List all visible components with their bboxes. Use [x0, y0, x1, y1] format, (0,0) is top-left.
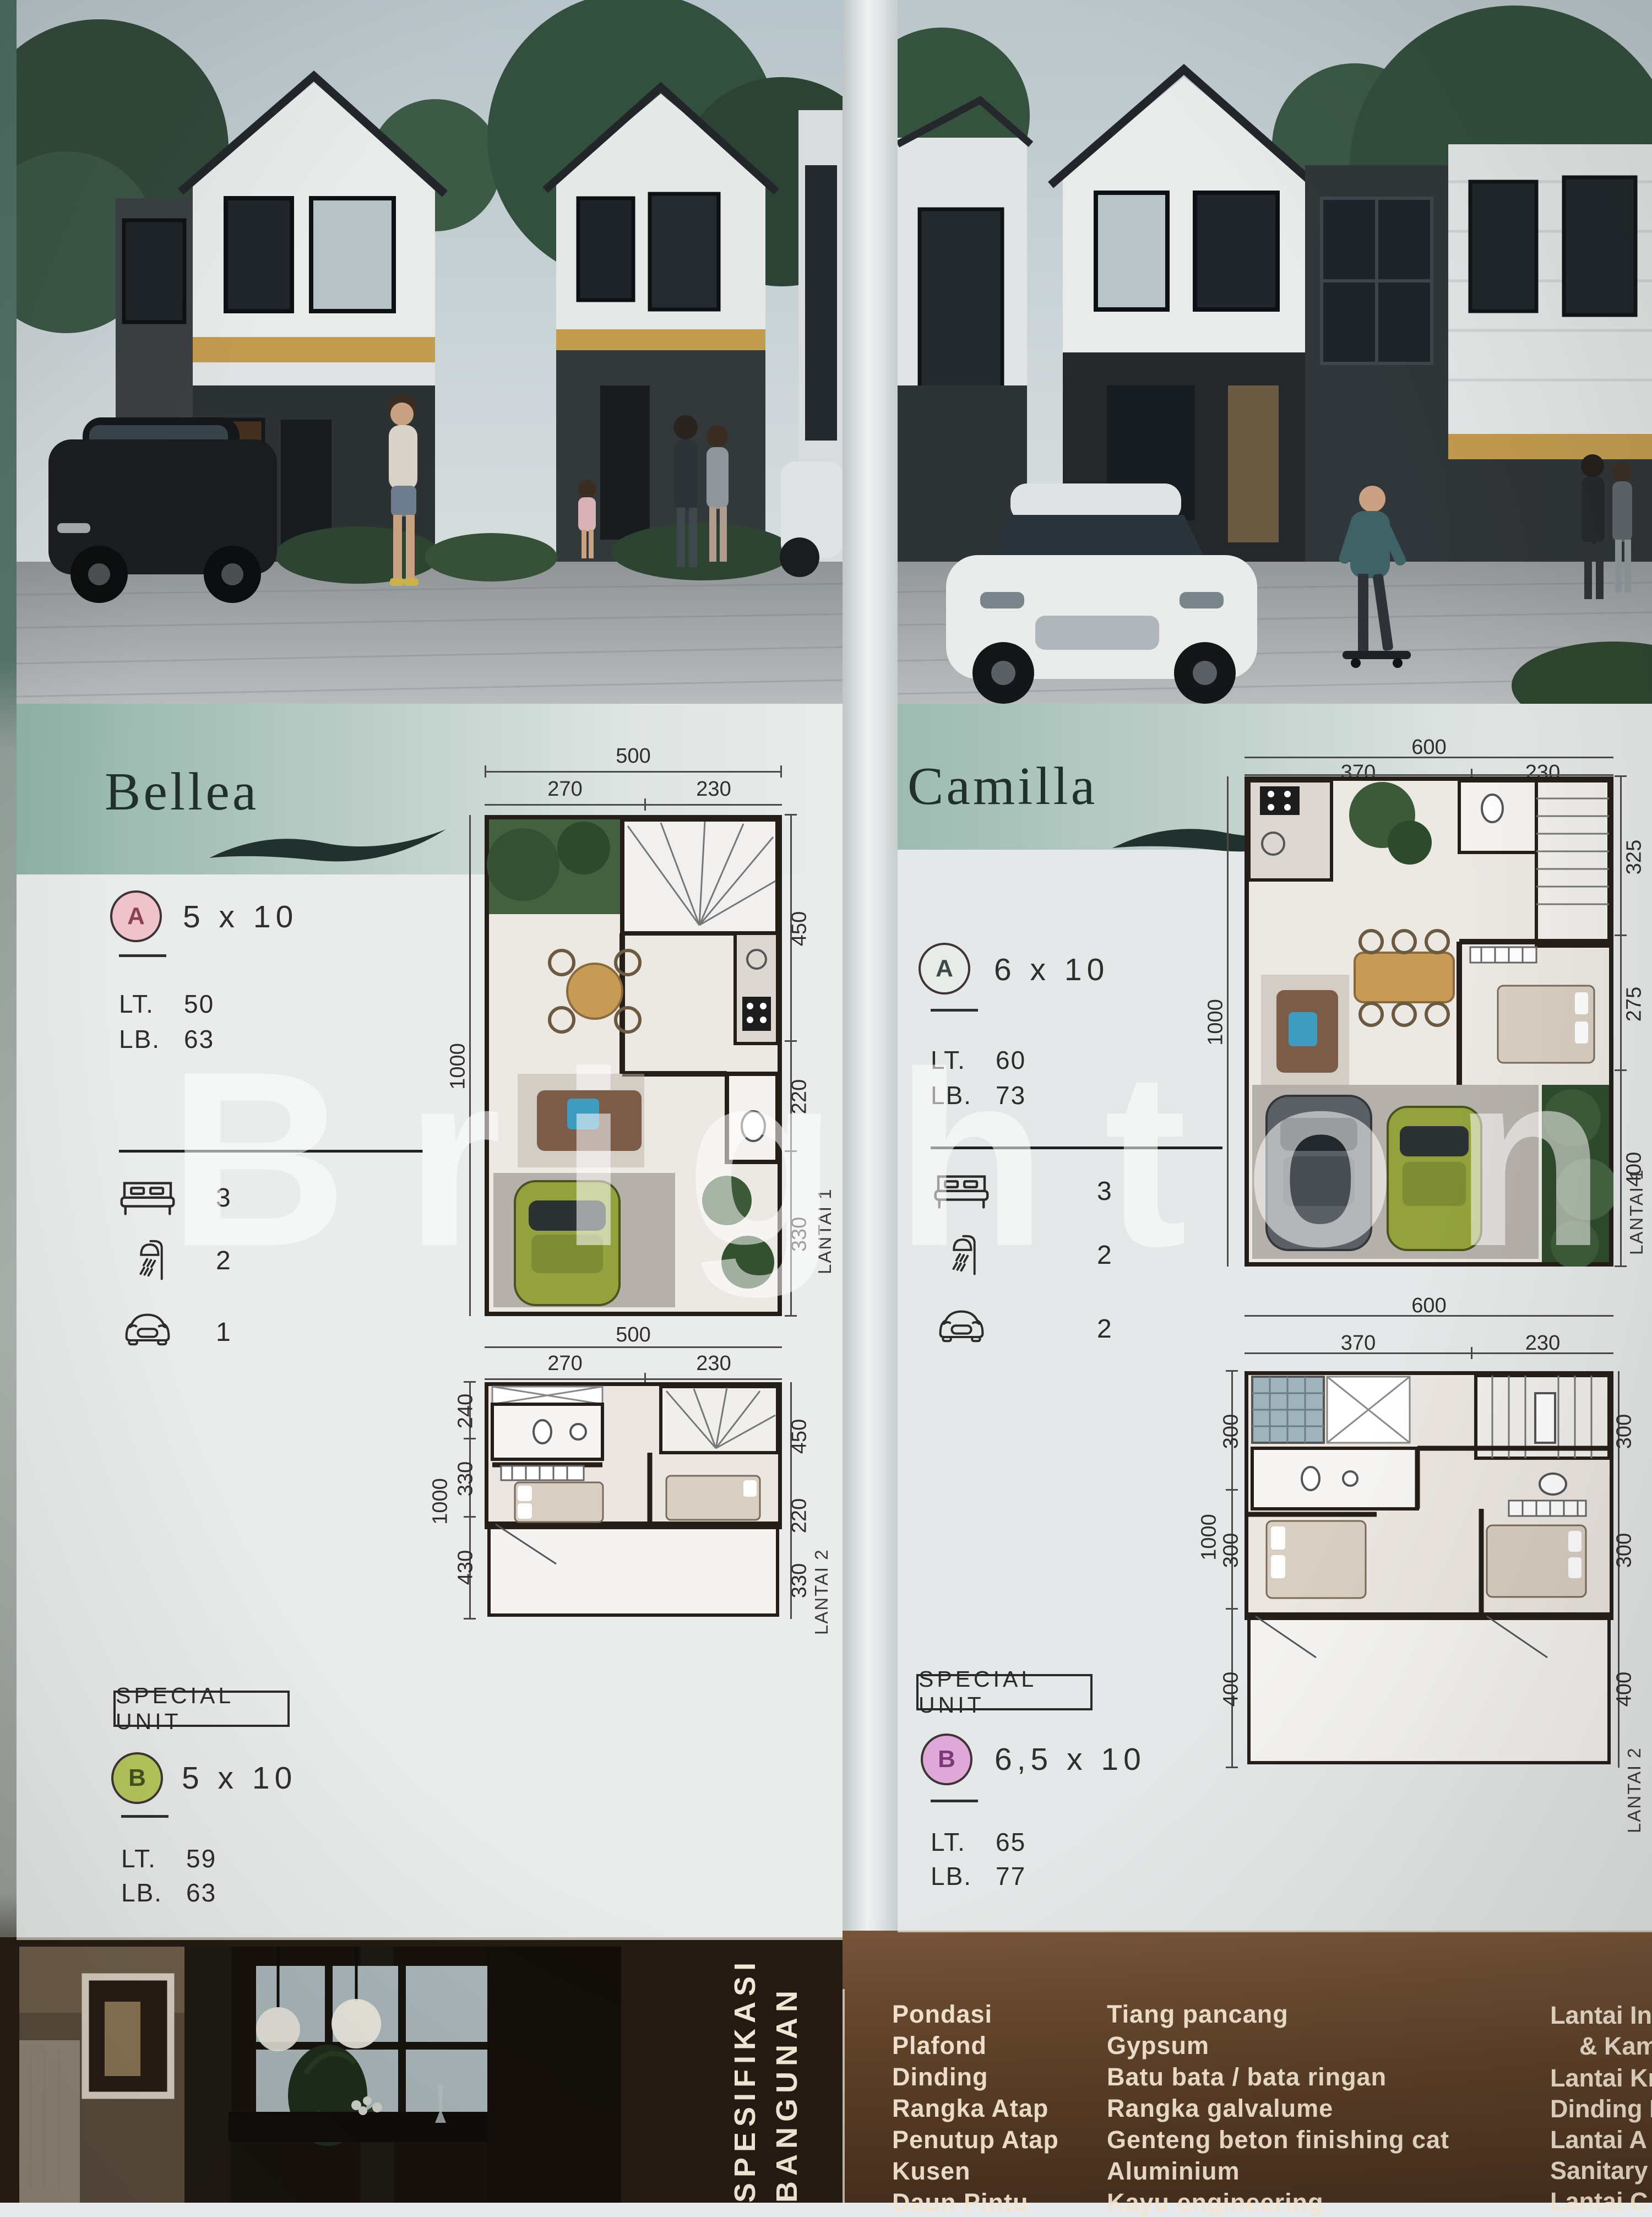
shower-icon	[130, 1236, 173, 1283]
spec-value: Kayu engineering	[1107, 2188, 1324, 2217]
dim-left-3: 430	[454, 1535, 478, 1601]
tick	[464, 1618, 476, 1620]
dim-line	[1245, 1315, 1613, 1317]
dim-right-0: 325	[1623, 824, 1646, 890]
interior-photo	[19, 1947, 621, 2203]
spec-value: Aluminium	[1107, 2157, 1240, 2186]
spec-label: Penutup Atap	[892, 2126, 1059, 2154]
spec-row: DindingBatu bata / bata ringan	[892, 2063, 1575, 2091]
dim-right-0: 450	[788, 896, 812, 962]
lt-value: 50	[184, 989, 214, 1019]
spec-header-line2: BANGUNAN	[770, 2002, 804, 2203]
dim-total: 500	[485, 745, 782, 768]
dim-segA: 370	[1245, 1332, 1472, 1355]
car-icon	[118, 1309, 177, 1347]
camilla-cars-count: 2	[1097, 1314, 1112, 1344]
bellea-unit-b-lb: LB. 63	[121, 1878, 216, 1908]
badge-letter: A	[936, 955, 953, 982]
panel-edge-line	[898, 1930, 1652, 1932]
dim-line	[485, 1378, 782, 1380]
spec-value: Tiang pancang	[1107, 2000, 1289, 2029]
dim-left-1: 330	[454, 1446, 478, 1512]
spec-row: Penutup AtapGenteng beton finishing cat	[892, 2126, 1575, 2154]
divider	[931, 1009, 978, 1012]
floor-label: LANTAI 2	[1624, 1756, 1645, 1833]
dim-right-0: 300	[1613, 1399, 1637, 1465]
divider	[119, 954, 166, 957]
camilla-unit-b-size: 6,5 x 10	[995, 1741, 1146, 1778]
spec-value: Gypsum	[1107, 2031, 1209, 2060]
spec-right-cut: Lantai In	[1550, 2001, 1652, 2030]
dim-right-2: 330	[788, 1548, 812, 1614]
tick	[1226, 1489, 1238, 1491]
spec-right-cut: Lantai Kr	[1550, 2064, 1652, 2093]
dim-segB: 230	[1472, 1332, 1613, 1355]
tick	[644, 798, 646, 811]
badge-letter: A	[127, 903, 145, 930]
spec-label: Dinding	[892, 2063, 988, 2091]
spec-value: Batu bata / bata ringan	[1107, 2063, 1387, 2091]
spec-label: Plafond	[892, 2031, 987, 2060]
tick	[1226, 1767, 1238, 1768]
tick	[485, 765, 486, 778]
spec-row: Daun PintuKayu engineering	[892, 2188, 1575, 2217]
spec-value: Genteng beton finishing cat	[1107, 2126, 1449, 2154]
spec-label: Kusen	[892, 2157, 971, 2185]
lt-value: 65	[996, 1827, 1026, 1857]
camilla-unit-b-lt: LT. 65	[931, 1827, 1026, 1857]
dim-total: 500	[485, 1323, 782, 1347]
dim-right-2: 400	[1613, 1656, 1637, 1722]
dim-line	[485, 771, 782, 773]
tick	[785, 814, 797, 816]
spec-header-line1: SPESIFIKASI	[728, 2002, 762, 2203]
camilla-floorplan-2: 600 370 230	[1200, 1283, 1652, 1850]
lt-label: LT.	[119, 989, 184, 1019]
dim-line	[1245, 1352, 1613, 1354]
dim-right-0: 450	[788, 1404, 812, 1470]
tick	[1226, 1370, 1238, 1372]
dim-line	[485, 1346, 782, 1348]
tick	[1615, 775, 1627, 777]
lt-label: LT.	[121, 1844, 186, 1873]
tick	[1471, 1347, 1472, 1359]
bellea-unit-a-badge: A	[110, 890, 162, 942]
dim-segB: 230	[645, 1352, 782, 1376]
badge-letter: B	[938, 1746, 955, 1773]
bellea-floorplan-2: 500 270 230 240 330 1000 430 450 220 3	[430, 1319, 837, 1638]
spec-right-cut: Dinding K	[1550, 2095, 1652, 2123]
spec-row: KusenAluminium	[892, 2157, 1575, 2186]
spec-label: Pondasi	[892, 2000, 992, 2028]
dim-line	[1245, 774, 1613, 776]
bellea-exterior-photo	[17, 0, 843, 704]
dim-total: 600	[1245, 736, 1613, 759]
dim-right-1: 220	[788, 1483, 812, 1549]
camilla-plan2-drawing	[1245, 1371, 1613, 1768]
dim-left-3: 400	[1220, 1656, 1243, 1722]
camilla-title: Camilla	[907, 756, 1097, 817]
dim-left-2: 1000	[429, 1469, 453, 1535]
camilla-special-unit-box: SPECIAL UNIT	[916, 1674, 1093, 1710]
bellea-unit-a-size: 5 x 10	[183, 899, 298, 935]
bellea-title: Bellea	[105, 761, 259, 823]
dim-segA: 270	[485, 1352, 645, 1376]
tick	[1615, 934, 1627, 936]
dim-right-1: 300	[1613, 1518, 1637, 1584]
dim-left-0: 300	[1220, 1399, 1243, 1465]
bellea-special-unit-box: SPECIAL UNIT	[113, 1691, 290, 1727]
bellea-title-swoosh	[204, 826, 452, 873]
bellea-cars-count: 1	[216, 1317, 231, 1347]
badge-letter: B	[128, 1764, 146, 1792]
camilla-unit-a-badge: A	[919, 943, 970, 995]
dim-segB: 230	[645, 778, 782, 801]
dim-segA: 270	[485, 778, 645, 801]
spec-divider-line	[843, 1989, 845, 2203]
lb-label: LB.	[121, 1878, 186, 1908]
bellea-unit-b-lt: LT. 59	[121, 1844, 216, 1873]
divider	[931, 1800, 978, 1802]
lt-value: 59	[186, 1844, 216, 1873]
bellea-unit-b-size: 5 x 10	[182, 1760, 297, 1796]
brighton-watermark: Brighton	[168, 1016, 1652, 1302]
divider	[121, 1815, 169, 1818]
brochure-left-edge	[0, 0, 17, 2203]
bellea-plan2-drawing	[485, 1382, 782, 1619]
dim-line	[485, 804, 782, 806]
spec-right-cut: Lantai A	[1550, 2126, 1647, 2154]
lt-label: LT.	[931, 1827, 996, 1857]
car-icon	[932, 1306, 991, 1344]
lb-value: 77	[996, 1861, 1026, 1891]
tick	[464, 1516, 476, 1518]
lb-label: LB.	[931, 1861, 996, 1891]
spec-right-cut: Sanitary	[1550, 2156, 1648, 2185]
tick	[780, 765, 782, 778]
tick	[785, 1315, 797, 1317]
lb-value: 63	[186, 1878, 216, 1908]
camilla-exterior-photo	[898, 0, 1652, 705]
camilla-unit-b-badge: B	[921, 1734, 972, 1785]
dim-left-2: 1000	[1198, 1504, 1221, 1571]
camilla-unit-b-lb: LB. 77	[931, 1861, 1026, 1891]
bellea-unit-a-lt: LT. 50	[119, 989, 214, 1019]
dim-left-1: 300	[1220, 1518, 1243, 1584]
spec-label: Rangka Atap	[892, 2094, 1048, 2122]
spec-row: PondasiTiang pancang	[892, 2000, 1575, 2029]
spec-right-cut: Lantai C	[1550, 2187, 1648, 2216]
tick	[1226, 1608, 1238, 1610]
spec-value: Rangka galvalume	[1107, 2094, 1333, 2123]
dim-line	[1245, 757, 1613, 758]
bellea-unit-b-badge: B	[111, 1752, 163, 1804]
spec-right-cut: & Kam	[1579, 2032, 1652, 2061]
panel-edge-line	[17, 1937, 843, 1940]
camilla-unit-a-size: 6 x 10	[994, 952, 1109, 988]
spec-row: PlafondGypsum	[892, 2031, 1575, 2060]
floor-label: LANTAI 2	[811, 1558, 832, 1635]
dim-left-0: 240	[454, 1378, 478, 1444]
spec-row: Rangka AtapRangka galvalume	[892, 2094, 1575, 2123]
